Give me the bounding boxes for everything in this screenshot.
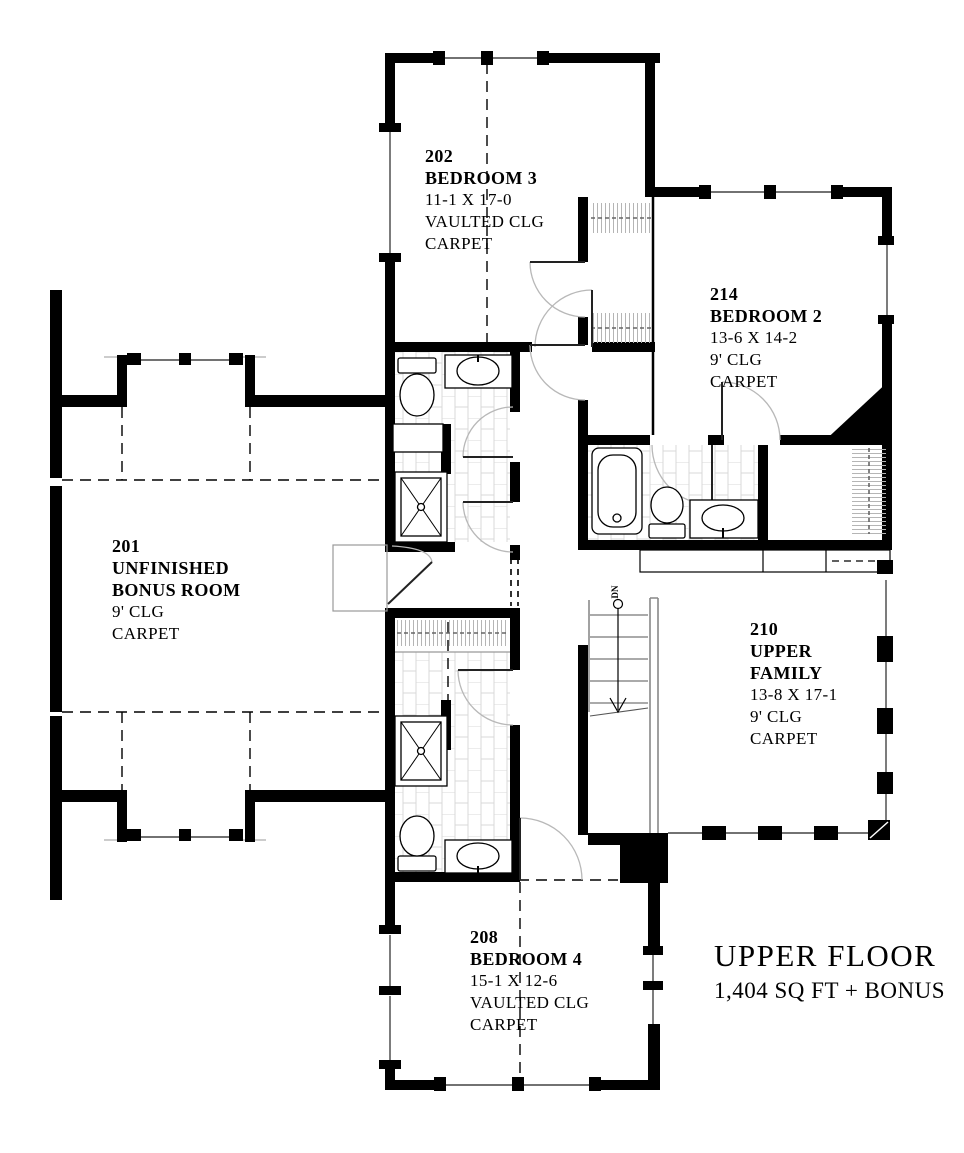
title-block: UPPER FLOOR 1,404 SQ FT + BONUS	[714, 938, 945, 1004]
room-number: 210	[750, 618, 838, 640]
room-number: 208	[470, 926, 589, 948]
room-ceiling: VAULTED CLG	[470, 992, 589, 1014]
room-label-bedroom3: 202 BEDROOM 3 11-1 X 17-0 VAULTED CLG CA…	[425, 145, 544, 255]
vanity-sink-lower-bath	[445, 840, 512, 873]
floor-area: 1,404 SQ FT + BONUS	[714, 978, 945, 1004]
room-name: BONUS ROOM	[112, 579, 241, 601]
bathtub	[592, 448, 642, 534]
room-label-bedroom2: 214 BEDROOM 2 13-6 X 14-2 9' CLG CARPET	[710, 283, 822, 393]
toilet-lower-bath	[398, 816, 436, 871]
stair-direction-arrow	[610, 600, 626, 713]
room-name: UNFINISHED	[112, 557, 241, 579]
staircase: DN	[589, 585, 658, 833]
room-ceiling: VAULTED CLG	[425, 211, 544, 233]
floor-title: UPPER FLOOR	[714, 938, 945, 974]
room-ceiling: 9' CLG	[750, 706, 838, 728]
vanity-sink-hall-bath	[690, 500, 758, 538]
vanity-sink-upper-bath	[445, 355, 512, 388]
shower-lower-bath	[395, 716, 447, 786]
linen-cabinet	[393, 424, 443, 452]
room-floor: CARPET	[470, 1014, 589, 1036]
attic-access-dashes	[511, 558, 518, 606]
room-label-family: 210 UPPER FAMILY 13-8 X 17-1 9' CLG CARP…	[750, 618, 838, 750]
room-number: 201	[112, 535, 241, 557]
room-name: BEDROOM 4	[470, 948, 589, 970]
toilet-upper-bath	[398, 358, 436, 416]
room-label-bedroom4: 208 BEDROOM 4 15-1 X 12-6 VAULTED CLG CA…	[470, 926, 589, 1036]
room-label-bonus: 201 UNFINISHED BONUS ROOM 9' CLG CARPET	[112, 535, 241, 645]
chimney-corner	[820, 378, 892, 445]
room-floor: CARPET	[710, 371, 822, 393]
floor-plan: DN 202 BEDROOM 3 11-1 X 17-0 VAULTED CLG…	[0, 0, 964, 1153]
room-floor: CARPET	[112, 623, 241, 645]
room-name: BEDROOM 3	[425, 167, 544, 189]
stair-railing	[650, 598, 658, 833]
room-name: UPPER	[750, 640, 838, 662]
toilet-hall-bath	[649, 487, 685, 538]
room-dimensions: 13-6 X 14-2	[710, 327, 822, 349]
stairs-down-label: DN	[610, 585, 620, 598]
shower-upper-bath	[395, 472, 447, 542]
room-dimensions: 15-1 X 12-6	[470, 970, 589, 992]
room-name: FAMILY	[750, 662, 838, 684]
room-floor: CARPET	[750, 728, 838, 750]
room-ceiling: 9' CLG	[112, 601, 241, 623]
room-number: 202	[425, 145, 544, 167]
room-ceiling: 9' CLG	[710, 349, 822, 371]
built-in-cabinets	[640, 550, 890, 572]
room-dimensions: 11-1 X 17-0	[425, 189, 544, 211]
room-floor: CARPET	[425, 233, 544, 255]
room-dimensions: 13-8 X 17-1	[750, 684, 838, 706]
room-name: BEDROOM 2	[710, 305, 822, 327]
room-number: 214	[710, 283, 822, 305]
